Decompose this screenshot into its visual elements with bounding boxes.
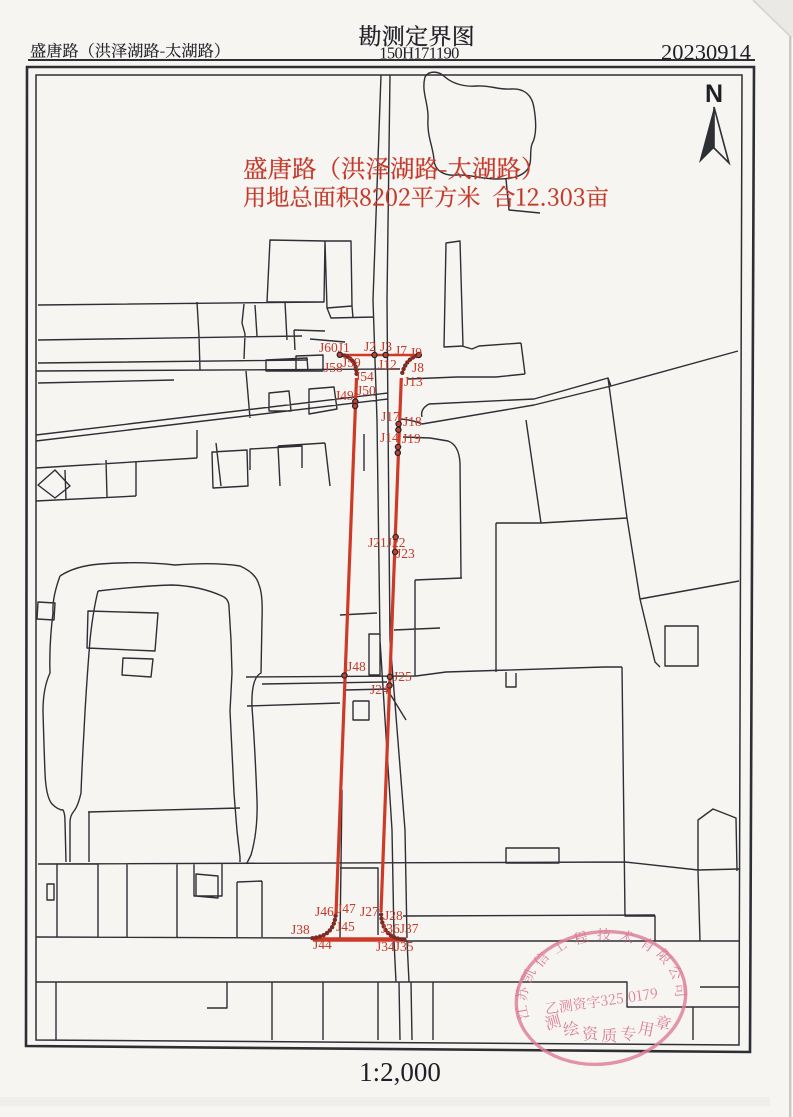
svg-text:J14: J14 (380, 430, 399, 445)
svg-text:J60J1: J60J1 (319, 340, 350, 355)
svg-text:J54: J54 (355, 369, 374, 384)
svg-text:150H171190: 150H171190 (379, 44, 459, 63)
svg-text:1:2,000: 1:2,000 (359, 1057, 441, 1087)
svg-text:J27: J27 (360, 904, 379, 919)
svg-text:J17: J17 (381, 409, 400, 424)
svg-text:J12: J12 (378, 357, 397, 372)
svg-text:J48: J48 (347, 659, 366, 674)
svg-text:J50: J50 (357, 383, 376, 398)
svg-text:J7: J7 (395, 343, 407, 358)
svg-text:J44: J44 (313, 937, 332, 952)
svg-text:J18: J18 (403, 414, 422, 429)
svg-text:J59: J59 (342, 355, 361, 370)
svg-text:J46: J46 (315, 904, 334, 919)
svg-text:J47: J47 (337, 901, 356, 916)
svg-text:J19: J19 (402, 431, 421, 446)
svg-text:J49: J49 (335, 388, 354, 403)
svg-text:20230914: 20230914 (661, 40, 751, 65)
svg-text:N: N (705, 80, 723, 108)
svg-text:J9: J9 (410, 345, 422, 360)
svg-text:J25: J25 (393, 669, 412, 684)
svg-text:J58: J58 (324, 360, 343, 375)
svg-text:J34J35: J34J35 (376, 939, 414, 954)
svg-text:J23: J23 (396, 546, 415, 561)
svg-text:J2: J2 (364, 339, 376, 354)
svg-text:J24: J24 (370, 682, 389, 697)
svg-text:J45: J45 (336, 919, 355, 934)
svg-text:J13: J13 (404, 374, 423, 389)
svg-text:J3: J3 (380, 339, 392, 354)
svg-text:J38: J38 (291, 922, 310, 937)
svg-text:J8: J8 (412, 360, 424, 375)
svg-text:J36J37: J36J37 (381, 921, 419, 936)
